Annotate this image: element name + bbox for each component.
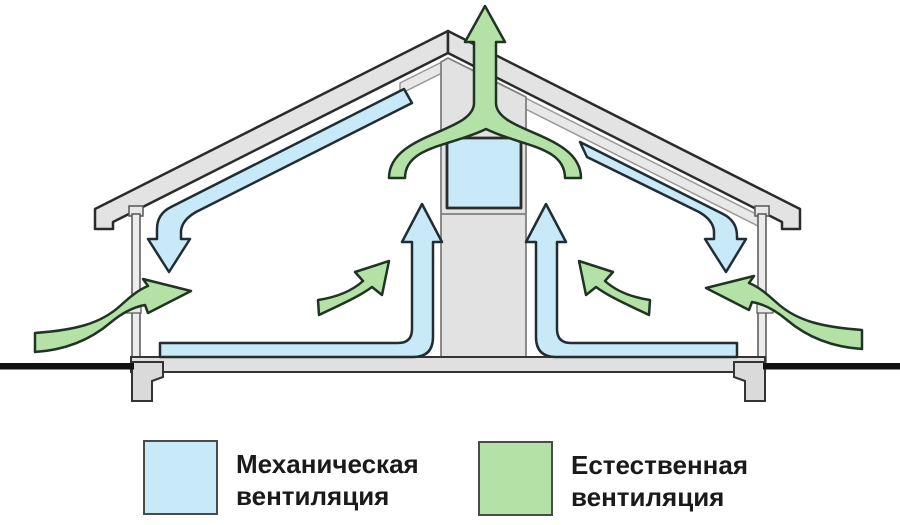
natural-flow-arrow-right: [579, 261, 650, 315]
natural-legend-label: Естественная вентиляция: [571, 449, 748, 513]
mechanical-legend-line1: Механическая: [236, 448, 419, 480]
mechanical-color-swatch: [143, 440, 218, 515]
legend-item-natural: Естественная вентиляция: [478, 441, 748, 516]
house-cross-section-drawing: [0, 0, 900, 430]
mechanical-floor-duct-arrow-left: [160, 204, 442, 357]
left-foundation: [132, 362, 163, 401]
fan-unit: [447, 138, 521, 208]
mechanical-floor-duct-arrow-right: [526, 204, 737, 357]
natural-intake-arrow-left: [35, 279, 191, 352]
left-wall: [132, 214, 140, 362]
natural-intake-arrow-right: [706, 276, 862, 349]
roof-left-slope: [95, 31, 448, 229]
natural-legend-line2: вентиляция: [571, 481, 748, 513]
natural-flow-arrow-left: [318, 261, 389, 315]
legend: Механическая вентиляция Естественная вен…: [0, 438, 900, 525]
mechanical-legend-line2: вентиляция: [236, 480, 419, 512]
ground-line-left: [0, 363, 134, 370]
mechanical-legend-label: Механическая вентиляция: [236, 448, 419, 512]
ground-line-right: [763, 363, 900, 370]
ventilation-diagram: Механическая вентиляция Естественная вен…: [0, 0, 900, 525]
legend-item-mechanical: Механическая вентиляция: [143, 440, 419, 515]
natural-legend-line1: Естественная: [571, 449, 748, 481]
right-foundation: [734, 362, 765, 401]
natural-color-swatch: [478, 441, 553, 516]
floor-slab: [131, 357, 765, 372]
